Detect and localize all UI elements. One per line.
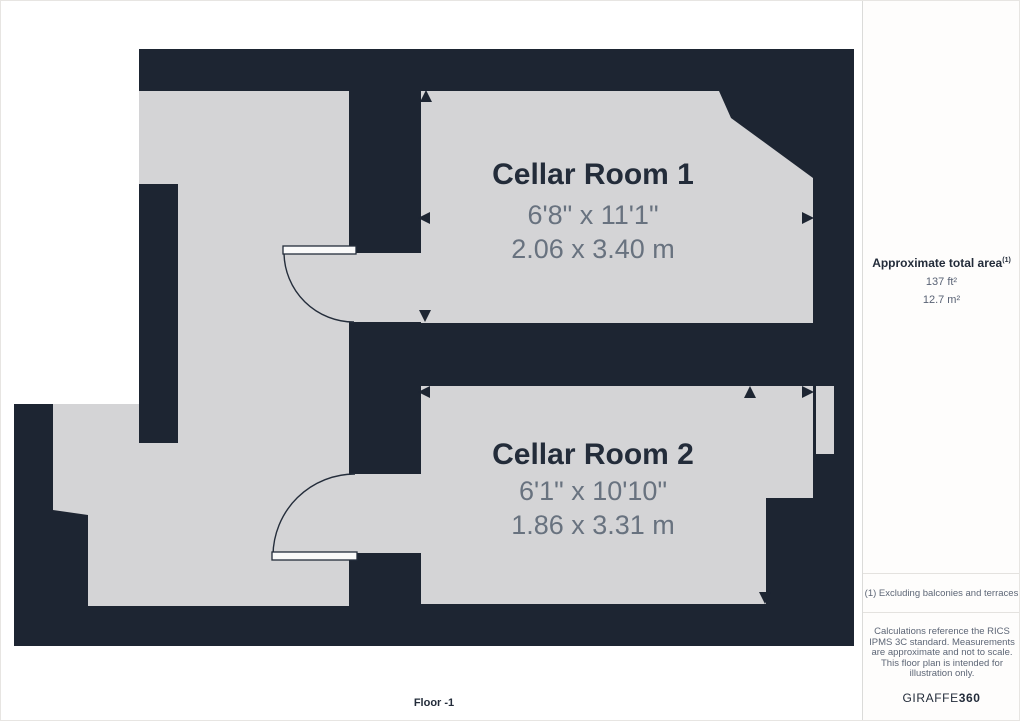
area-heading-footnote-marker: (1) xyxy=(1002,257,1011,264)
total-area-heading: Approximate total area(1) xyxy=(863,256,1020,270)
floor-plan-page: Cellar Room 1 6'8" x 11'1" 2.06 x 3.40 m… xyxy=(0,0,1020,721)
room-1-metric: 2.06 x 3.40 m xyxy=(511,234,675,264)
room-2-recess xyxy=(816,386,834,454)
room-2-imperial: 6'1" x 10'10" xyxy=(519,476,667,506)
door-1-leaf xyxy=(283,246,356,254)
room-1-imperial: 6'8" x 11'1" xyxy=(527,200,658,230)
doorway-2-opening xyxy=(349,474,421,553)
room-2-metric: 1.86 x 3.31 m xyxy=(511,510,675,540)
disclaimer-text: Calculations reference the RICS IPMS 3C … xyxy=(869,627,1015,680)
doorway-1-opening xyxy=(349,253,421,322)
total-area-ft: 137 ft² xyxy=(863,276,1020,288)
footnote: (1) Excluding balconies and terraces xyxy=(863,573,1020,613)
disclaimer-block: Calculations reference the RICS IPMS 3C … xyxy=(863,613,1020,721)
room-1-title: Cellar Room 1 xyxy=(492,158,694,191)
giraffe360-logo: GIRAFFE360 xyxy=(869,691,1014,705)
floor-level-label: Floor -1 xyxy=(369,697,499,709)
floor-plan-canvas: Cellar Room 1 6'8" x 11'1" 2.06 x 3.40 m… xyxy=(1,1,862,721)
door-2-leaf xyxy=(272,552,357,560)
info-sidebar: Approximate total area(1) 137 ft² 12.7 m… xyxy=(862,1,1020,721)
total-area-m: 12.7 m² xyxy=(863,294,1020,306)
room-2-title: Cellar Room 2 xyxy=(492,438,694,471)
total-area-block: Approximate total area(1) 137 ft² 12.7 m… xyxy=(863,256,1020,306)
corridor-floor xyxy=(53,91,349,606)
